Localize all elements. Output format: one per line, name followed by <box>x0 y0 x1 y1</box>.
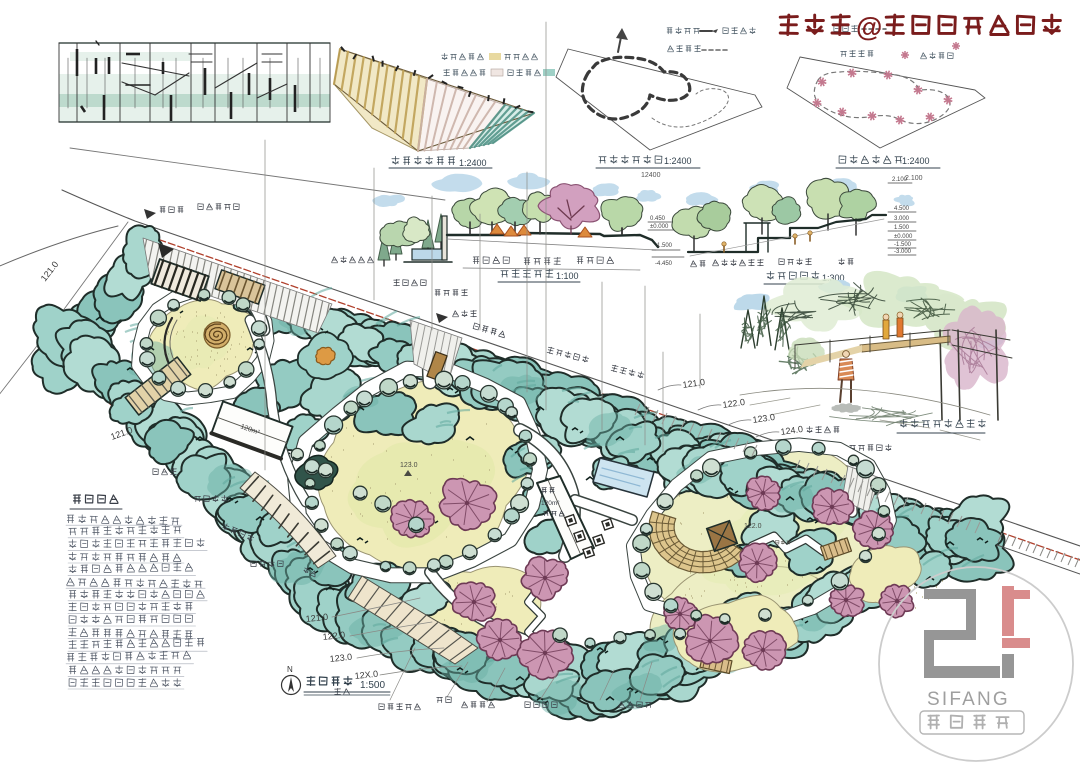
svg-text:1:2400: 1:2400 <box>459 158 487 168</box>
svg-text:±0.000: ±0.000 <box>894 234 913 240</box>
svg-text:1:2400: 1:2400 <box>902 156 930 166</box>
svg-text:1:500: 1:500 <box>360 680 385 691</box>
svg-text:@: @ <box>856 12 882 42</box>
svg-text:2.100: 2.100 <box>905 175 923 182</box>
svg-text:4.500: 4.500 <box>894 206 910 212</box>
svg-text:-1.500: -1.500 <box>655 243 673 249</box>
svg-text:-4.450: -4.450 <box>655 261 673 267</box>
svg-text:1:100: 1:100 <box>556 271 579 281</box>
svg-text:-3.000: -3.000 <box>894 249 912 255</box>
svg-text:120m²: 120m² <box>541 500 560 507</box>
svg-text:12400: 12400 <box>641 172 661 179</box>
svg-text:3.000: 3.000 <box>894 216 910 222</box>
svg-text:-1.500: -1.500 <box>894 242 912 248</box>
svg-text:SIFANG: SIFANG <box>927 689 1010 710</box>
svg-text:1:2400: 1:2400 <box>664 156 692 166</box>
svg-text:±0.000: ±0.000 <box>650 224 669 230</box>
svg-text:0.450: 0.450 <box>650 216 666 222</box>
svg-text:2.100: 2.100 <box>892 177 908 183</box>
svg-text:N: N <box>287 665 293 674</box>
svg-text:122.0: 122.0 <box>744 523 762 530</box>
svg-text:1.500: 1.500 <box>894 225 910 231</box>
svg-text:123.0: 123.0 <box>400 462 418 469</box>
